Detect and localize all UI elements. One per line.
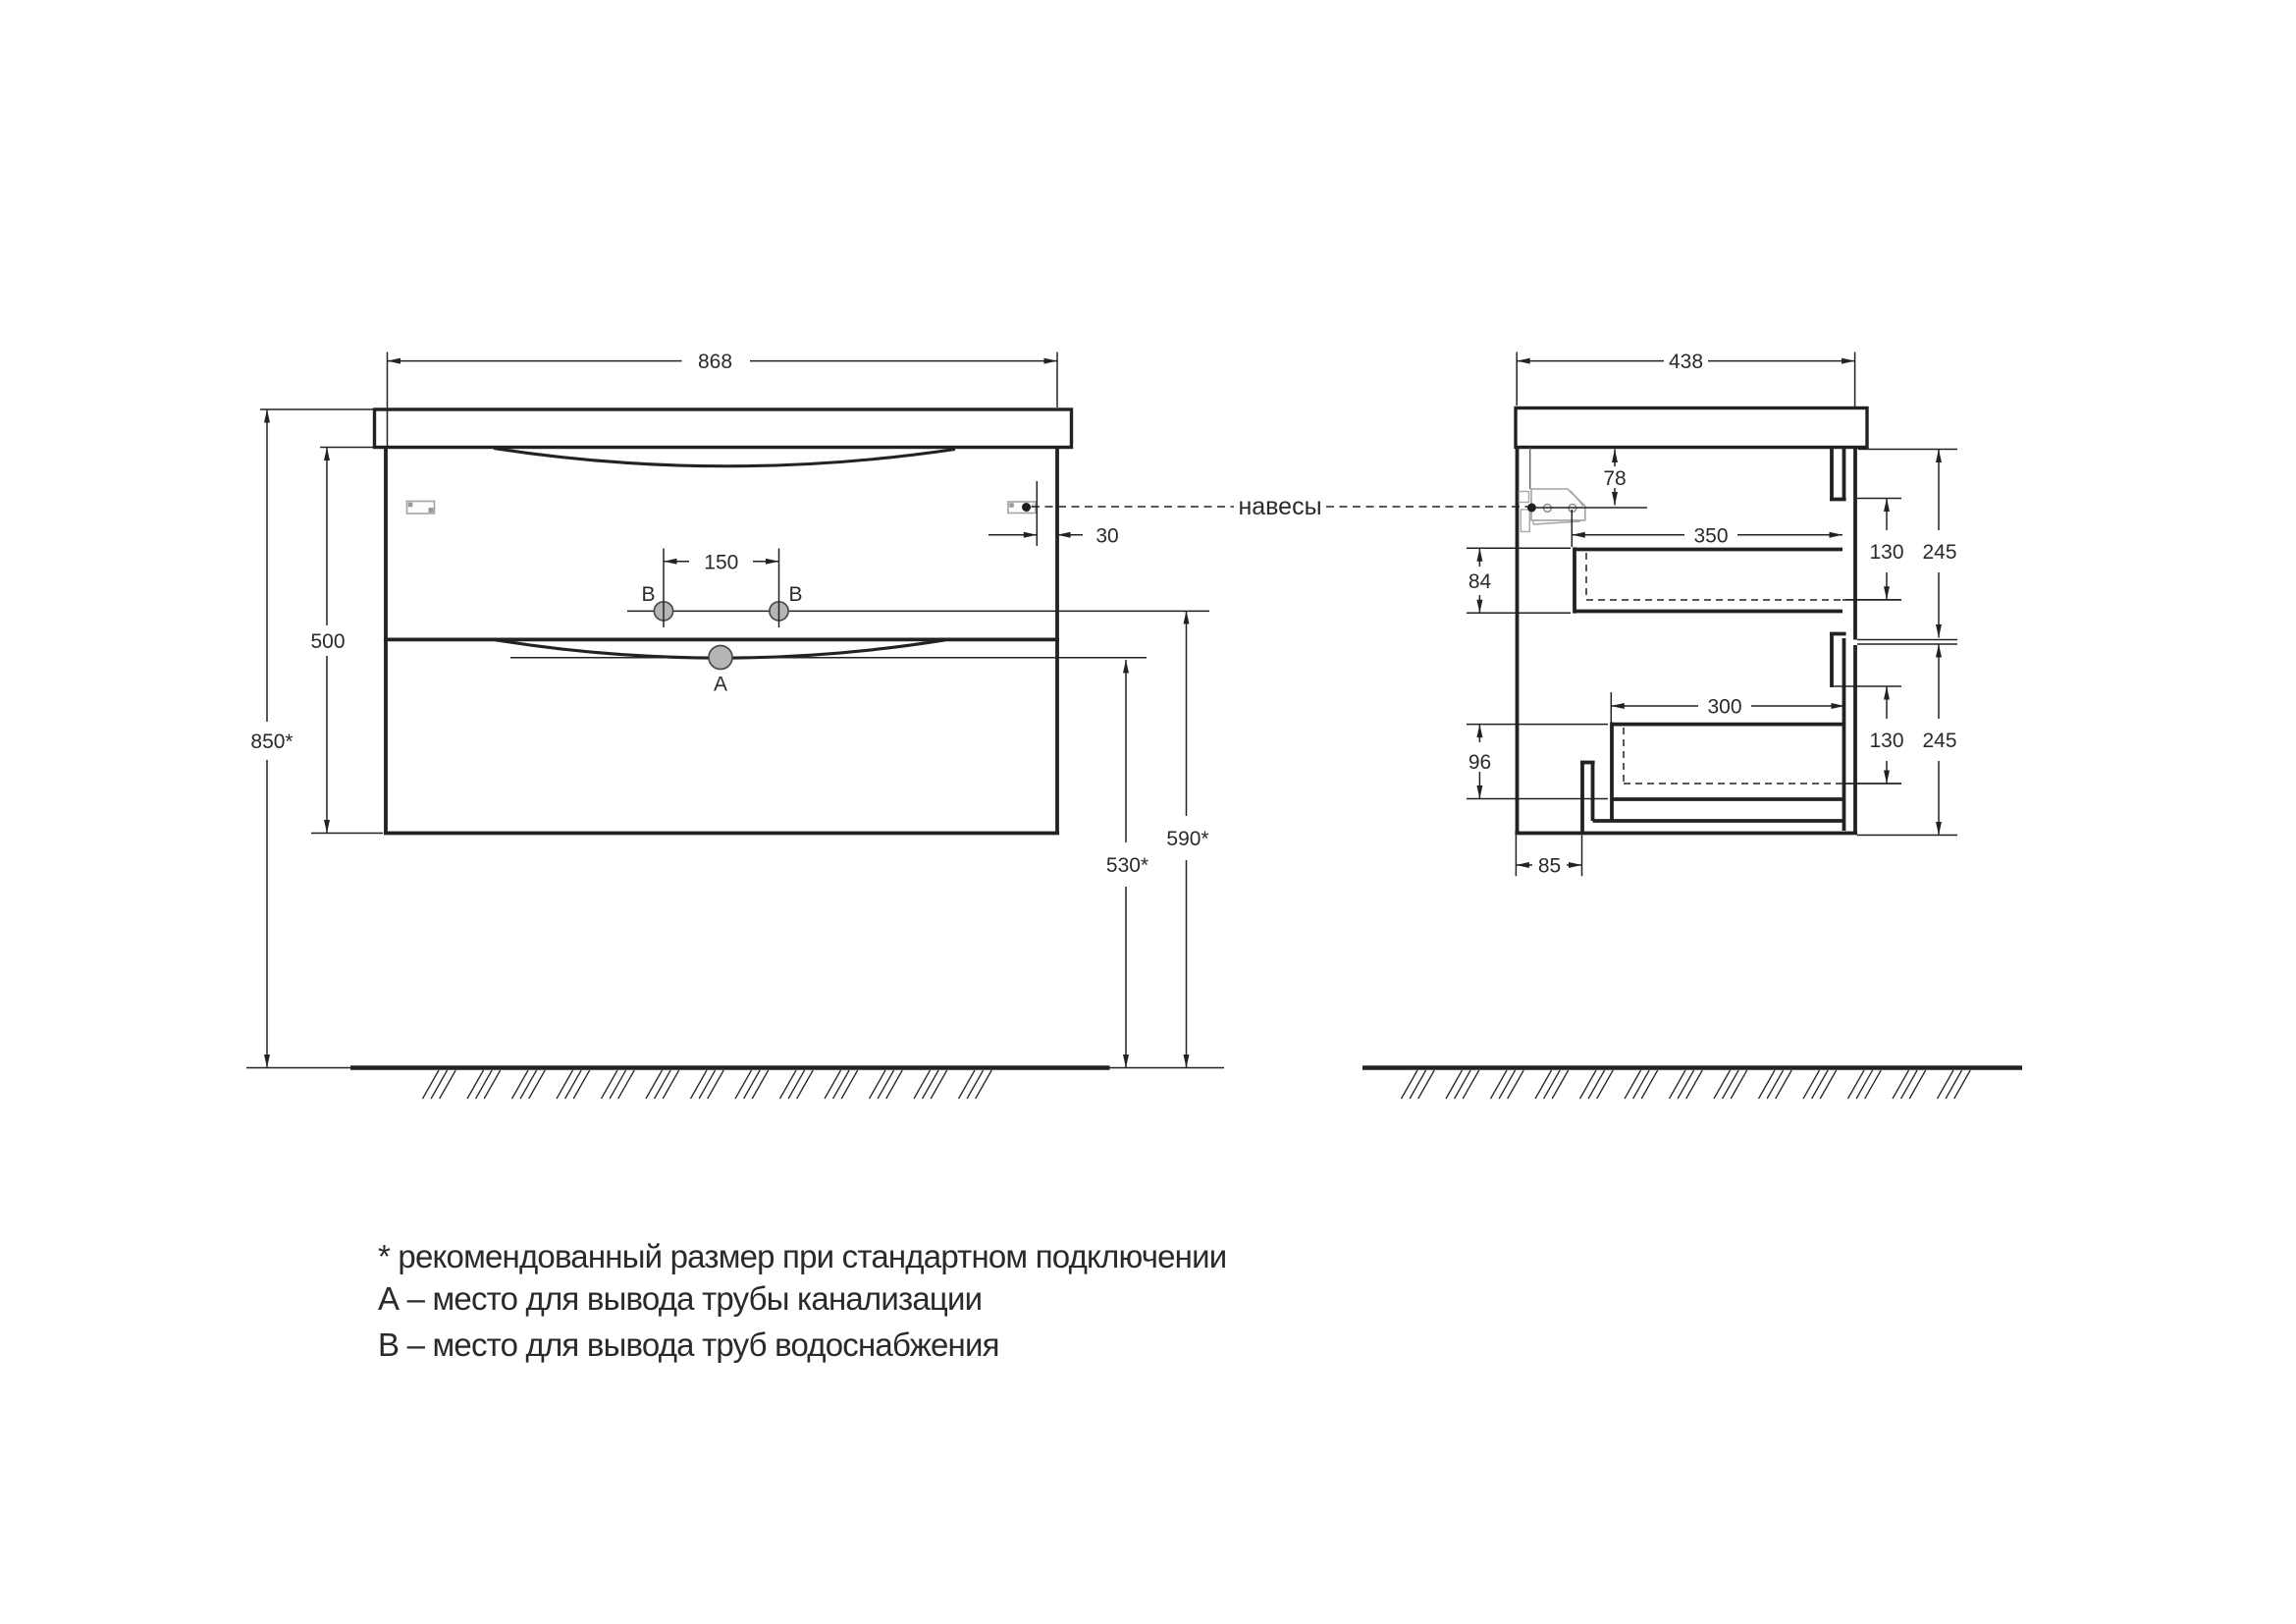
svg-text:96: 96 xyxy=(1468,751,1491,774)
svg-text:85: 85 xyxy=(1538,855,1561,878)
svg-text:* рекомендованный размер при с: * рекомендованный размер при стандартном… xyxy=(378,1238,1226,1274)
svg-text:500: 500 xyxy=(310,630,345,653)
svg-text:590*: 590* xyxy=(1166,828,1208,850)
svg-text:130: 130 xyxy=(1869,730,1903,752)
svg-text:навесы: навесы xyxy=(1238,493,1321,520)
svg-text:438: 438 xyxy=(1669,351,1703,373)
svg-text:130: 130 xyxy=(1869,541,1903,564)
svg-text:84: 84 xyxy=(1468,570,1492,593)
svg-text:300: 300 xyxy=(1707,696,1741,719)
svg-text:868: 868 xyxy=(698,351,732,373)
svg-text:530*: 530* xyxy=(1106,854,1148,877)
svg-text:А – место для вывода трубы кан: А – место для вывода трубы канализации xyxy=(378,1280,982,1317)
svg-text:350: 350 xyxy=(1693,525,1728,548)
svg-text:78: 78 xyxy=(1603,467,1626,490)
svg-text:30: 30 xyxy=(1095,525,1118,548)
svg-text:B: B xyxy=(788,583,802,606)
svg-text:850*: 850* xyxy=(250,731,293,753)
svg-text:245: 245 xyxy=(1922,541,1956,564)
svg-text:B: B xyxy=(641,583,655,606)
svg-text:150: 150 xyxy=(704,552,738,574)
svg-text:В – место для вывода труб водо: В – место для вывода труб водоснабжения xyxy=(378,1326,999,1363)
svg-text:A: A xyxy=(714,674,727,696)
svg-text:245: 245 xyxy=(1922,730,1956,752)
